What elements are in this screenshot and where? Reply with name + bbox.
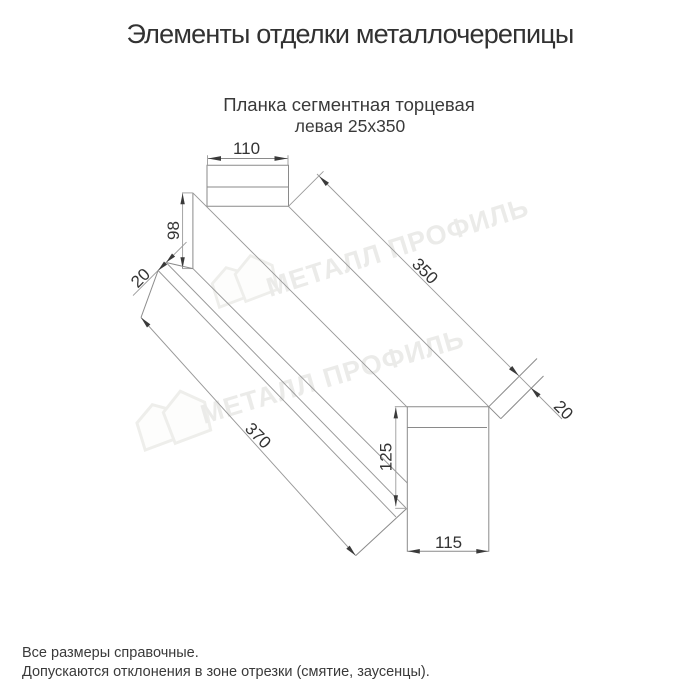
svg-text:115: 115 [435,533,462,552]
svg-text:Элементы отделки металлочерепи: Элементы отделки металлочерепицы [126,19,573,49]
svg-text:125: 125 [377,443,396,471]
svg-text:левая 25х350: левая 25х350 [295,116,406,136]
svg-text:Планка сегментная торцевая: Планка сегментная торцевая [223,94,475,115]
svg-text:Все размеры справочные.: Все размеры справочные. [22,645,199,661]
svg-text:98: 98 [164,221,183,240]
svg-text:110: 110 [233,139,260,158]
svg-text:Допускаются отклонения в зоне: Допускаются отклонения в зоне отрезки (с… [22,664,430,680]
